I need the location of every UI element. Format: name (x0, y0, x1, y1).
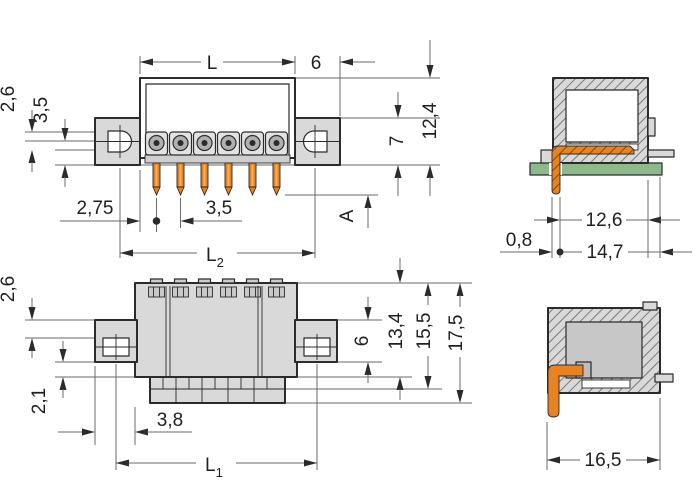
contact-block (194, 132, 216, 155)
dim-label-L: L (207, 53, 218, 74)
side-view-mounted: 12,6 0,8 14,7 (500, 78, 692, 263)
dim-6-top: 6 (311, 53, 375, 116)
dim-label-7: 7 (387, 136, 408, 147)
dim-label-0-8: 0,8 (506, 230, 532, 251)
dim-label-13-4: 13,4 (386, 312, 407, 349)
front-flange-left (95, 118, 140, 165)
dim-2-75: 2,75 (60, 170, 160, 232)
contact-block (146, 132, 168, 155)
dim-A: A (337, 195, 372, 228)
front-contacts-and-pins (145, 132, 290, 195)
dim-label-pitch-3-5: 3,5 (206, 198, 232, 219)
solder-pin (153, 163, 160, 195)
dim-dot-terminator (557, 249, 564, 256)
dim-17-5: 17,5 (446, 283, 467, 403)
contact-block (218, 132, 240, 155)
dim-7: 7 (387, 92, 408, 196)
dim-2-1: 2,1 (29, 341, 67, 414)
dim-16-5: 16,5 (547, 398, 660, 471)
dim-pitch-3-5: 3,5 (181, 198, 243, 228)
dim-label-3-8: 3,8 (157, 410, 183, 431)
solder-pin (177, 163, 184, 195)
side-housing-cavity (566, 90, 638, 142)
dim-label-3-5-front: 3,5 (31, 97, 52, 123)
solder-pin (273, 163, 280, 195)
dim-label-6-plan: 6 (352, 336, 373, 347)
dim-12-4: 12,4 (420, 40, 441, 196)
dim-12-6: 12,6 (534, 209, 680, 231)
solder-pin (249, 163, 256, 195)
dim-label-A: A (337, 209, 358, 222)
dim-label-14-7: 14,7 (587, 242, 624, 263)
dim-0-8: 0,8 (500, 230, 552, 256)
dimensional-drawing: L 6 12,4 7 A (0, 0, 697, 496)
side-housing-latch (648, 118, 655, 136)
dim-13-4: 13,4 (386, 258, 407, 400)
dim-label-6-top: 6 (311, 53, 322, 74)
side-view-detail: 16,5 (547, 302, 673, 471)
dim-dot-terminator (153, 217, 161, 225)
dim-15-5: 15,5 (414, 283, 435, 389)
dim-label-12-6: 12,6 (586, 210, 623, 231)
contact-block (242, 132, 264, 155)
plan-lower-comb (150, 377, 285, 403)
dim-label-2-6-plan: 2,6 (0, 276, 19, 302)
dim-L: L (140, 51, 295, 74)
contact-block (170, 132, 192, 155)
dim-label-15-5: 15,5 (414, 313, 435, 350)
dim-label-2-1: 2,1 (29, 388, 50, 414)
solder-pin (201, 163, 208, 195)
dim-label-12-4: 12,4 (420, 102, 441, 139)
dim-label-2-6-front: 2,6 (0, 86, 19, 112)
plan-flange-right (295, 320, 337, 362)
front-comb-strip (145, 155, 290, 163)
dim-label-17-5: 17,5 (446, 315, 467, 352)
dim-L2: L2 (120, 168, 315, 270)
dim-6-plan: 6 (352, 297, 373, 383)
dim-group-side-mounted: 12,6 0,8 14,7 (500, 177, 692, 263)
front-view: L 6 12,4 7 A (0, 40, 441, 270)
side-flange-edge (541, 150, 553, 163)
plan-view: 2,6 2,1 3,8 L1 (0, 258, 472, 480)
detail-housing-notch (643, 302, 657, 310)
detail-comb-pocket (582, 380, 630, 388)
dim-3-5-front: 3,5 (31, 97, 69, 187)
front-flange-right (295, 118, 340, 165)
technical-drawing-page: L 6 12,4 7 A (0, 0, 697, 496)
dim-14-7: 14,7 (557, 241, 693, 263)
contact-block (266, 132, 288, 155)
detail-pin-stub (655, 374, 673, 382)
plan-flange-left (95, 320, 137, 362)
dim-label-2-75: 2,75 (77, 198, 114, 219)
solder-pin (225, 163, 232, 195)
dim-2-6-plan: 2,6 (0, 276, 36, 358)
mating-pin-stub (648, 150, 674, 157)
solder-pin-row (153, 163, 280, 195)
dim-label-16-5: 16,5 (585, 450, 622, 471)
